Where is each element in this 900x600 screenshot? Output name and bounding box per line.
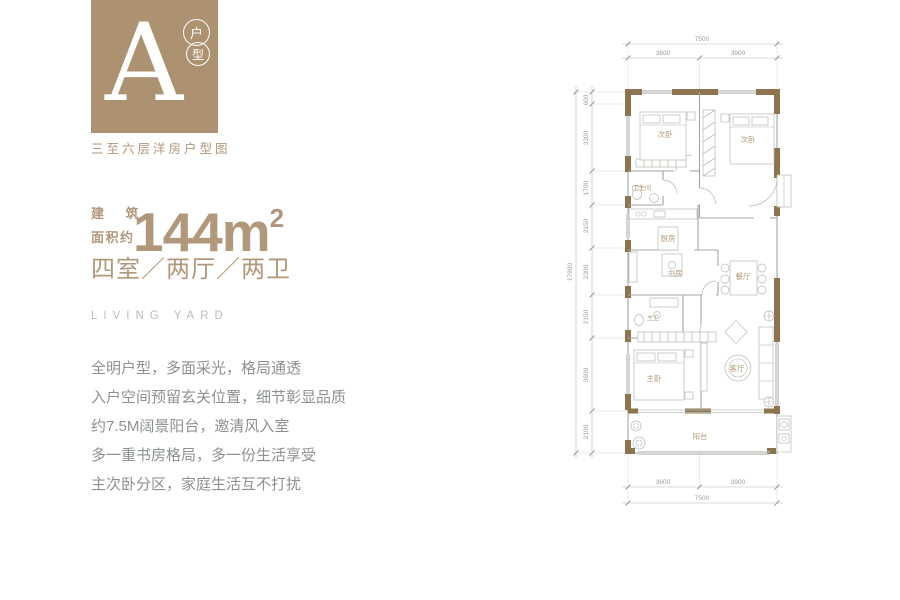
- area-superscript: 2: [270, 203, 284, 233]
- dim-left-seg: 600: [583, 94, 590, 105]
- room-label-bedroom-left: 次卧: [658, 129, 673, 139]
- dim-top-total: 7500: [695, 36, 710, 43]
- room-label-study: 书房: [668, 268, 683, 278]
- room-label-living: 客厅: [730, 363, 745, 373]
- room-count-line: 四室／两厅／两卫: [91, 249, 291, 284]
- dimension-top: 7500 3600 3900: [622, 36, 783, 61]
- door-arcs: [663, 155, 777, 342]
- dim-left-total: 17900: [567, 263, 574, 281]
- dim-top-right: 3900: [731, 50, 746, 57]
- feature-item: 全明户型，多面采光，格局通透: [91, 354, 346, 383]
- dimension-left: 17900 600 3300 1700 2150 2300 2150 3600 …: [567, 86, 595, 458]
- room-label-dining: 餐厅: [736, 272, 751, 281]
- floorplan-poster: A 户 型 三至六层洋房户型图 建 筑 面积约 144m2 四室／两厅／两卫 L…: [0, 0, 900, 600]
- feature-item: 多一重书房格局，多一份生活享受: [91, 441, 346, 470]
- feature-item: 入户空间预留玄关位置，细节彰显品质: [91, 383, 346, 412]
- tagline: LIVING YARD: [91, 310, 229, 322]
- dim-left-seg: 2100: [583, 424, 590, 439]
- room-label-master-bath: 主卫: [647, 314, 659, 322]
- dim-left-seg: 2150: [583, 309, 590, 324]
- dim-bottom-total: 7500: [695, 495, 710, 502]
- type-badge: A 户 型: [91, 0, 218, 133]
- floor-plan-svg: 7500 3600 3900 17900 600 3300: [558, 28, 808, 518]
- room-label-bedroom-right: 次卧: [741, 134, 756, 144]
- room-label-kitchen: 厨房: [661, 233, 676, 243]
- plant-icon: [631, 421, 645, 449]
- feature-item: 主次卧分区，家庭生活互不打扰: [91, 470, 346, 499]
- room-label-bathroom: 卫生间: [633, 184, 651, 192]
- dim-left-seg: 3300: [583, 130, 590, 145]
- dim-bottom-left: 3600: [656, 479, 671, 486]
- dim-left-seg: 3600: [583, 367, 590, 382]
- badge-circle-hu-label: 户: [190, 23, 203, 42]
- dim-left-seg: 2150: [583, 218, 590, 233]
- badge-circle-xing: 型: [186, 42, 210, 66]
- dim-left-seg: 1700: [583, 180, 590, 195]
- series-caption: 三至六层洋房户型图: [91, 138, 241, 157]
- room-label-balcony: 阳台: [693, 431, 708, 441]
- dim-left-seg: 2300: [583, 264, 590, 279]
- feature-list: 全明户型，多面采光，格局通透 入户空间预留玄关位置，细节彰显品质 约7.5M阔景…: [91, 354, 346, 499]
- type-letter: A: [85, 2, 203, 126]
- feature-item: 约7.5M阔景阳台，邀清风入室: [91, 412, 346, 441]
- dim-bottom-right: 3900: [731, 479, 746, 486]
- badge-circle-xing-label: 型: [192, 46, 204, 63]
- dim-top-left: 3600: [656, 50, 671, 57]
- room-label-master-bedroom: 主卧: [647, 373, 662, 383]
- dimension-bottom: 3600 3900 7500: [622, 479, 783, 506]
